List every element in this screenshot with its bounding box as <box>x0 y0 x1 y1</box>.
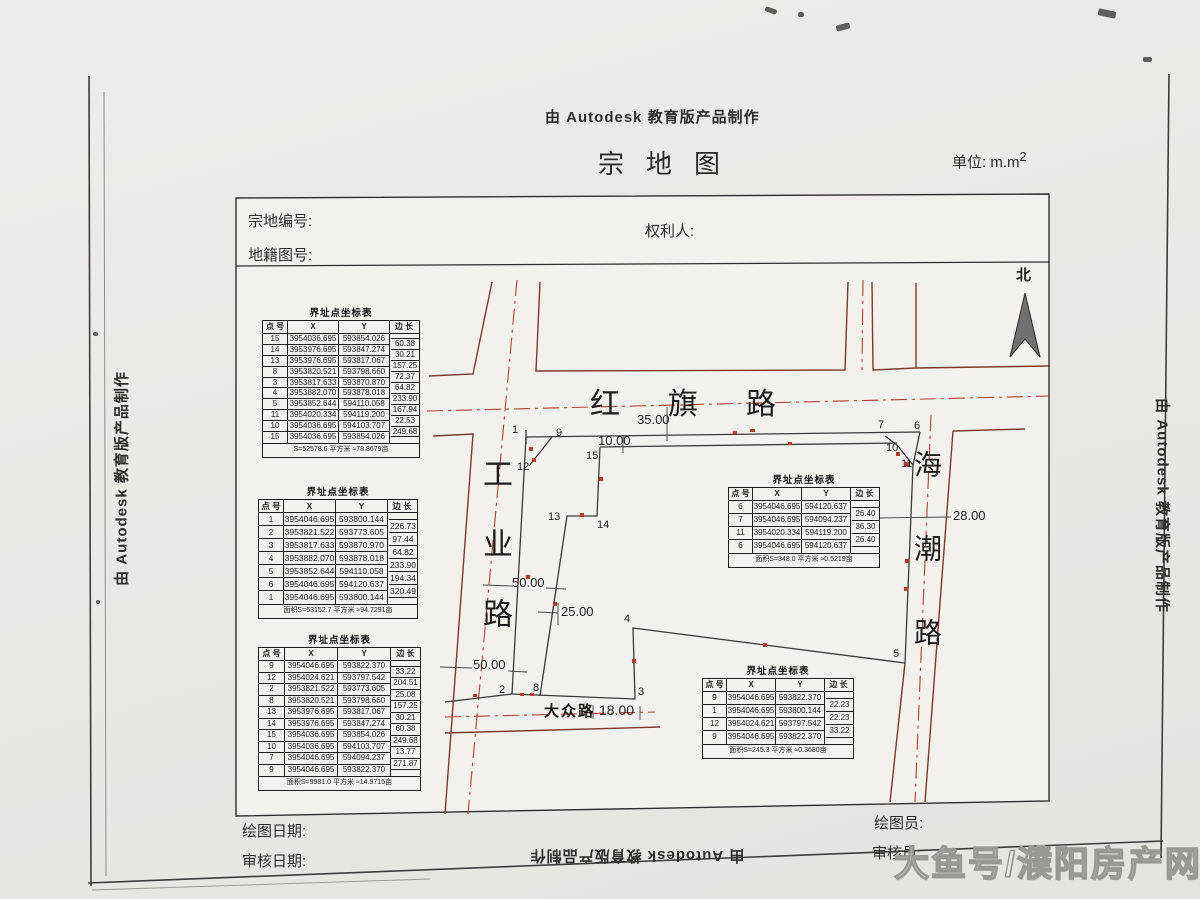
parcel-number-label: 宗地编号: <box>248 210 312 231</box>
left-autodesk-stamp: 由 Autodesk 教育版产品制作 <box>111 329 132 629</box>
table-header-row: 点 号XY边 长 <box>259 500 417 513</box>
table-area-footer: 面积S=348.0 平方米 ≈0.5219亩 <box>729 553 879 567</box>
point-cell: 5 <box>259 565 284 577</box>
point-cell: 3953817.633 <box>284 539 336 551</box>
table-box: 点 号XY边 长153954036.695593854.026143953976… <box>262 320 420 458</box>
dim-50a: 50.00 <box>512 575 545 590</box>
point-cell: 15 <box>263 334 288 344</box>
edge-length-cell: 33.22 <box>391 667 420 679</box>
point-cell: 6 <box>729 501 753 513</box>
table-body: 93954046.695593822.370123954024.62159379… <box>259 661 420 776</box>
table-row: 83953820.521593798.660 <box>263 367 390 378</box>
point-cell: 3954046.695 <box>727 705 776 717</box>
point-cell: 593800.144 <box>336 513 388 525</box>
point-label-11: 11 <box>901 458 912 470</box>
point-cell: 593822.370 <box>338 661 391 672</box>
point-cell: 593878.018 <box>339 388 390 398</box>
point-cell: 593797.542 <box>338 673 391 684</box>
point-cell: 15 <box>259 730 285 741</box>
scan-speck <box>93 332 98 336</box>
header-cell: 点 号 <box>703 679 727 691</box>
point-cell: 3 <box>259 539 284 551</box>
point-cell: 593817.067 <box>338 707 391 718</box>
point-cell: 5 <box>263 399 288 409</box>
point-cell: 2 <box>259 684 285 695</box>
edge-length-column: 60.3830.21157.2572.3764.82233.90167.9422… <box>391 334 419 443</box>
point-cell: 593854.026 <box>339 432 390 443</box>
point-cell: 3953976.695 <box>285 719 338 730</box>
edge-length-cell: 249.68 <box>391 427 419 438</box>
point-cell: 3 <box>263 378 288 388</box>
table-row: 73954046.695594094.237 <box>259 753 391 765</box>
table-row: 153954036.695593854.026 <box>263 432 390 443</box>
edge-length-cell: 64.82 <box>389 546 417 559</box>
table-row: 13954046.695593800.144 <box>703 705 825 718</box>
point-label-6: 6 <box>914 420 920 432</box>
dim-18: 18.00 <box>599 702 634 718</box>
header-cell: Y <box>339 321 390 333</box>
table-row: 113954020.334594119.200 <box>729 527 851 540</box>
point-cell: 14 <box>263 345 288 355</box>
point-cell: 3953821.522 <box>285 684 338 695</box>
north-label: 北 <box>1016 264 1031 285</box>
boundary-point-coordinate-table: 界址点坐标表点 号XY边 长153954036.695593854.026143… <box>262 305 420 458</box>
point-cell: 3954046.695 <box>753 514 802 526</box>
edge-length-cell: 249.68 <box>391 736 420 748</box>
point-cell: 3953821.522 <box>284 526 336 538</box>
point-label-5: 5 <box>893 648 899 660</box>
point-cell: 12 <box>259 673 285 684</box>
point-cell: 9 <box>703 692 727 704</box>
table-row: 93954046.695593822.370 <box>703 692 825 705</box>
boundary-point-coordinate-table: 界址点坐标表点 号XY边 长93954046.695593822.3701239… <box>258 632 421 791</box>
boundary-point-coordinate-table: 界址点坐标表点 号XY边 长63954046.695594120.6377395… <box>728 472 880 568</box>
point-cell: 6 <box>729 540 753 553</box>
point-label-3: 3 <box>638 686 644 698</box>
dim-50b: 50.00 <box>473 657 506 672</box>
scanned-parcel-map-page: 由 Autodesk 教育版产品制作 宗地图 单位: m.m2 由 Autode… <box>0 0 1200 899</box>
point-cell: 593798.660 <box>338 696 391 707</box>
table-row: 13954046.695593800.144 <box>259 513 388 526</box>
edge-length-column: 33.22204.5125.08157.2530.2160.38249.6813… <box>391 661 420 776</box>
table-row: 23953821.522593773.605 <box>259 526 388 539</box>
edge-length-column: 26.4036.3026.40 <box>852 501 879 553</box>
edge-length-column: 22.2322.2333.22 <box>826 692 853 744</box>
point-cell: 3954036.695 <box>285 730 338 741</box>
table-area-footer: 面积S=245.3 平方米 ≈0.3680亩 <box>703 744 853 758</box>
point-cell: 10 <box>259 742 285 753</box>
point-cell: 3953817.633 <box>288 378 339 388</box>
boundary-point-coordinate-table: 界址点坐标表点 号XY边 长13954046.695593800.1442395… <box>258 484 418 619</box>
point-cell: 14 <box>259 719 285 730</box>
edge-length-cell: 226.73 <box>389 520 417 533</box>
point-cell: 594120.637 <box>336 578 388 590</box>
edge-length-cell: 30.21 <box>391 350 419 361</box>
table-row: 103954036.695594103.707 <box>263 421 390 432</box>
point-cell: 594119.200 <box>339 410 390 420</box>
table-box: 点 号XY边 长63954046.695594120.63773954046.6… <box>728 487 880 568</box>
point-label-4: 4 <box>624 613 630 625</box>
point-cell: 3954046.695 <box>727 731 776 744</box>
edge-length-column: 226.7397.4464.82233.90194.34320.49 <box>389 513 417 604</box>
point-cell: 3954020.334 <box>288 410 339 420</box>
point-cell: 593854.026 <box>338 730 391 741</box>
point-cell: 1 <box>259 591 284 604</box>
edge-length-cell: 204.51 <box>391 678 420 690</box>
point-cell: 8 <box>263 367 288 377</box>
table-box: 点 号XY边 长93954046.695593822.370123954024.… <box>258 647 421 791</box>
point-cell: 8 <box>259 696 285 707</box>
point-cell: 594120.637 <box>802 501 851 513</box>
table-row: 153954036.695593854.026 <box>263 334 390 345</box>
table-body: 153954036.695593854.026143953976.6955938… <box>263 334 419 443</box>
table-row: 93954046.695593822.370 <box>259 765 391 777</box>
point-cell: 593847.274 <box>338 719 391 730</box>
point-cell: 594120.637 <box>802 540 851 553</box>
table-header-row: 点 号XY边 长 <box>703 679 853 692</box>
point-label-14: 14 <box>597 519 609 531</box>
table-row: 143953976.695593847.274 <box>263 345 390 356</box>
edge-length-cell: 72.37 <box>391 372 419 383</box>
point-cell: 9 <box>703 731 727 744</box>
point-cell: 13 <box>259 707 285 718</box>
point-cell: 3954046.695 <box>285 661 338 672</box>
table-title: 界址点坐标表 <box>258 632 421 646</box>
table-row: 93954046.695593822.370 <box>259 661 391 673</box>
point-cell: 3954046.695 <box>285 765 338 777</box>
point-cell: 3953976.695 <box>285 707 338 718</box>
edge-length-cell: 22.23 <box>826 712 853 725</box>
unit-sup: 2 <box>1020 150 1027 164</box>
table-row: 33953817.633593870.970 <box>259 539 388 552</box>
point-cell: 3954046.695 <box>284 591 336 604</box>
point-cell: 594103.707 <box>338 742 391 753</box>
header-cell: X <box>753 488 802 500</box>
review-date-label: 审核日期: <box>242 850 306 871</box>
boundary-point-coordinate-table: 界址点坐标表点 号XY边 长93954046.695593822.3701395… <box>702 663 854 759</box>
point-cell: 3953976.695 <box>288 345 339 355</box>
edge-length-cell: 25.08 <box>391 690 420 702</box>
point-cell: 593878.018 <box>336 552 388 564</box>
edge-length-cell: 26.40 <box>852 508 879 521</box>
header-cell: 点 号 <box>263 321 288 333</box>
edge-length-cell: 36.30 <box>852 521 879 534</box>
point-cell: 1 <box>259 513 284 525</box>
edge-length-cell: 22.23 <box>826 699 853 712</box>
edge-length-cell: 64.82 <box>391 383 419 394</box>
point-cell: 593822.370 <box>338 765 391 777</box>
table-row: 53953852.644594110.058 <box>263 399 390 410</box>
header-cell: X <box>285 648 338 660</box>
point-cell: 3953852.644 <box>284 565 336 577</box>
point-cell: 2 <box>259 526 284 538</box>
edge-length-cell: 157.25 <box>391 361 419 372</box>
header-cell: Y <box>336 500 388 512</box>
point-cell: 10 <box>263 421 288 431</box>
point-cell: 13 <box>263 356 288 366</box>
point-cell: 11 <box>729 527 753 539</box>
point-cell: 4 <box>259 552 284 564</box>
table-body: 93954046.695593822.37013954046.695593800… <box>703 692 853 744</box>
table-row: 13954046.695593800.144 <box>259 591 388 604</box>
point-label-7: 7 <box>878 419 884 431</box>
point-cell: 6 <box>259 578 284 590</box>
edge-length-cell: 320.49 <box>389 585 417 598</box>
table-body: 13954046.695593800.14423953821.522593773… <box>259 513 417 604</box>
point-cell: 3954024.621 <box>727 718 776 730</box>
table-area-footer: S=52578.6 平方米 ≈78.8679亩 <box>263 443 419 457</box>
header-cell: Y <box>802 488 851 500</box>
point-cell: 3953820.521 <box>288 367 339 377</box>
point-label-2: 2 <box>499 684 505 696</box>
table-row: 43953882.070593878.018 <box>259 552 388 565</box>
edge-length-cell: 97.44 <box>389 533 417 546</box>
point-label-10: 10 <box>886 442 898 454</box>
table-row: 83953820.521593798.660 <box>259 696 391 708</box>
point-cell: 3954046.695 <box>753 540 802 553</box>
scan-speck <box>798 12 804 17</box>
table-title: 界址点坐标表 <box>702 663 854 677</box>
point-cell: 3953976.695 <box>288 356 339 366</box>
header-cell: 边 长 <box>851 488 878 500</box>
header-cell: 边 长 <box>388 500 416 512</box>
road-label-gongye: 工业路 <box>472 458 516 668</box>
point-cell: 4 <box>263 388 288 398</box>
point-cell: 3954046.695 <box>284 513 336 525</box>
edge-length-cell: 233.90 <box>389 559 417 572</box>
point-cell: 3953882.070 <box>288 388 339 398</box>
table-row: 73954046.695594094.237 <box>729 514 851 527</box>
page-title: 宗地图 <box>598 144 742 181</box>
point-cell: 3954020.334 <box>753 527 802 539</box>
dim-35: 35.00 <box>637 412 670 427</box>
point-cell: 3954046.695 <box>285 753 338 764</box>
point-label-13: 13 <box>548 511 560 523</box>
edge-length-cell: 26.40 <box>852 534 879 547</box>
point-label-1: 1 <box>512 424 518 436</box>
edge-length-cell: 22.53 <box>391 416 419 427</box>
table-row: 63954046.695594120.637 <box>729 501 851 514</box>
header-cell: X <box>288 321 339 333</box>
header-cell: 边 长 <box>391 648 420 660</box>
table-box: 点 号XY边 长93954046.695593822.37013954046.6… <box>702 678 854 759</box>
table-body: 63954046.695594120.63773954046.695594094… <box>729 501 879 553</box>
owner-label: 权利人: <box>645 220 694 241</box>
edge-length-cell: 271.87 <box>391 759 420 771</box>
edge-length-cell: 33.22 <box>826 725 853 738</box>
table-title: 界址点坐标表 <box>728 472 880 486</box>
point-cell: 3954036.695 <box>285 742 338 753</box>
point-cell: 594110.058 <box>339 399 390 409</box>
point-cell: 593870.970 <box>336 539 388 551</box>
header-cell: 点 号 <box>729 488 753 500</box>
point-cell: 593817.067 <box>339 356 390 366</box>
header-cell: 点 号 <box>259 648 285 660</box>
header-cell: X <box>284 500 336 512</box>
road-label-hongqi: 红旗路 <box>590 379 824 423</box>
point-cell: 3954024.621 <box>285 673 338 684</box>
point-cell: 593822.370 <box>776 731 825 744</box>
dim-25: 25.00 <box>561 604 594 619</box>
point-cell: 594094.237 <box>338 753 391 764</box>
table-row: 123954024.621593797.542 <box>703 718 825 731</box>
table-header-row: 点 号XY边 长 <box>729 488 879 501</box>
point-cell: 15 <box>263 432 288 443</box>
watermark: 大鱼号/濮阳房产网 <box>894 836 1200 887</box>
point-cell: 3953882.070 <box>284 552 336 564</box>
table-row: 93954046.695593822.370 <box>703 731 825 744</box>
unit-label: 单位: m.m2 <box>952 150 1026 172</box>
table-row: 63954046.695594120.637 <box>259 578 388 591</box>
table-row: 113954020.334594119.200 <box>263 410 390 421</box>
point-cell: 3954036.695 <box>288 432 339 443</box>
point-cell: 593822.370 <box>776 692 825 704</box>
point-cell: 9 <box>259 661 285 672</box>
point-cell: 593800.144 <box>336 591 388 604</box>
draw-date-label: 绘图日期: <box>242 820 306 841</box>
table-row: 53953852.644594110.058 <box>259 565 388 578</box>
point-cell: 3953852.644 <box>288 399 339 409</box>
top-autodesk-stamp: 由 Autodesk 教育版产品制作 <box>545 106 760 127</box>
dim-10: 10.00 <box>598 433 631 448</box>
edge-length-cell: 194.34 <box>389 572 417 585</box>
header-cell: Y <box>338 648 391 660</box>
table-header-row: 点 号XY边 长 <box>263 321 419 334</box>
point-cell: 593798.660 <box>339 367 390 377</box>
point-cell: 7 <box>259 753 285 764</box>
table-row: 133953976.695593817.067 <box>259 707 391 719</box>
dim-28: 28.00 <box>953 508 986 523</box>
edge-length-cell: 167.94 <box>391 405 419 416</box>
road-label-dazhong: 大众路 <box>544 700 595 721</box>
table-row: 143953976.695593847.274 <box>259 719 391 731</box>
point-cell: 594094.237 <box>802 514 851 526</box>
edge-length-cell: 60.38 <box>391 724 420 736</box>
point-label-9: 9 <box>556 427 562 439</box>
unit-text: 单位: m.m <box>952 154 1020 171</box>
point-cell: 3954046.695 <box>753 501 802 513</box>
header-cell: 边 长 <box>390 321 418 333</box>
edge-length-cell: 60.38 <box>391 339 419 350</box>
table-title: 界址点坐标表 <box>258 484 418 498</box>
table-row: 123954024.621593797.542 <box>259 673 391 685</box>
point-cell: 593847.274 <box>339 345 390 355</box>
scan-speck <box>1143 57 1152 62</box>
table-row: 63954046.695594120.637 <box>729 540 851 553</box>
north-arrow-icon <box>1010 293 1040 357</box>
point-cell: 593773.605 <box>336 526 388 538</box>
point-cell: 7 <box>729 514 753 526</box>
table-row: 103954036.695594103.707 <box>259 742 391 754</box>
drafter-label: 绘图员: <box>874 812 923 833</box>
point-cell: 593800.144 <box>776 705 825 717</box>
point-cell: 12 <box>703 718 727 730</box>
table-row: 33953817.633593870.870 <box>263 378 390 389</box>
header-cell: Y <box>776 679 825 691</box>
edge-length-cell: 30.21 <box>391 713 420 725</box>
point-cell: 594103.707 <box>339 421 390 431</box>
point-label-12: 12 <box>517 461 529 473</box>
point-cell: 9 <box>259 765 285 777</box>
header-cell: 点 号 <box>259 500 284 512</box>
table-row: 153954036.695593854.026 <box>259 730 391 742</box>
table-header-row: 点 号XY边 长 <box>259 648 420 661</box>
point-label-15: 15 <box>586 450 598 462</box>
point-cell: 1 <box>703 705 727 717</box>
table-area-footer: 面积S=63152.7 平方米 ≈94.7291亩 <box>259 604 417 618</box>
road-label-haichao: 海潮路 <box>906 450 946 702</box>
point-cell: 594110.058 <box>336 565 388 577</box>
point-cell: 593797.542 <box>776 718 825 730</box>
point-cell: 593854.026 <box>339 334 390 344</box>
table-area-footer: 面积S=9981.0 平方米 ≈14.9715亩 <box>259 776 420 790</box>
point-cell: 593773.605 <box>338 684 391 695</box>
point-cell: 11 <box>263 410 288 420</box>
scan-speck <box>96 600 100 604</box>
point-label-8: 8 <box>533 682 539 694</box>
point-cell: 594119.200 <box>802 527 851 539</box>
table-row: 43953882.070593878.018 <box>263 388 390 399</box>
table-row: 133953976.695593817.067 <box>263 356 390 367</box>
edge-length-cell: 13.77 <box>391 747 420 759</box>
point-cell: 3954046.695 <box>284 578 336 590</box>
table-row: 23953821.522593773.605 <box>259 684 391 696</box>
bottom-autodesk-stamp: 由 Autodesk 教育版产品制作 <box>487 846 787 867</box>
header-cell: X <box>727 679 776 691</box>
edge-length-cell: 233.90 <box>391 394 419 405</box>
point-cell: 593870.870 <box>339 378 390 388</box>
point-cell: 3954036.695 <box>288 421 339 431</box>
point-cell: 3954036.695 <box>288 334 339 344</box>
table-box: 点 号XY边 长13954046.695593800.14423953821.5… <box>258 499 418 619</box>
right-autodesk-stamp: 由 Autodesk 教育版产品制作 <box>1153 356 1174 656</box>
edge-length-cell: 157.25 <box>391 701 420 713</box>
point-cell: 3954046.695 <box>727 692 776 704</box>
point-cell: 3953820.521 <box>285 696 338 707</box>
table-title: 界址点坐标表 <box>262 305 420 319</box>
sheet-number-label: 地籍图号: <box>248 244 312 265</box>
header-cell: 边 长 <box>825 679 852 691</box>
